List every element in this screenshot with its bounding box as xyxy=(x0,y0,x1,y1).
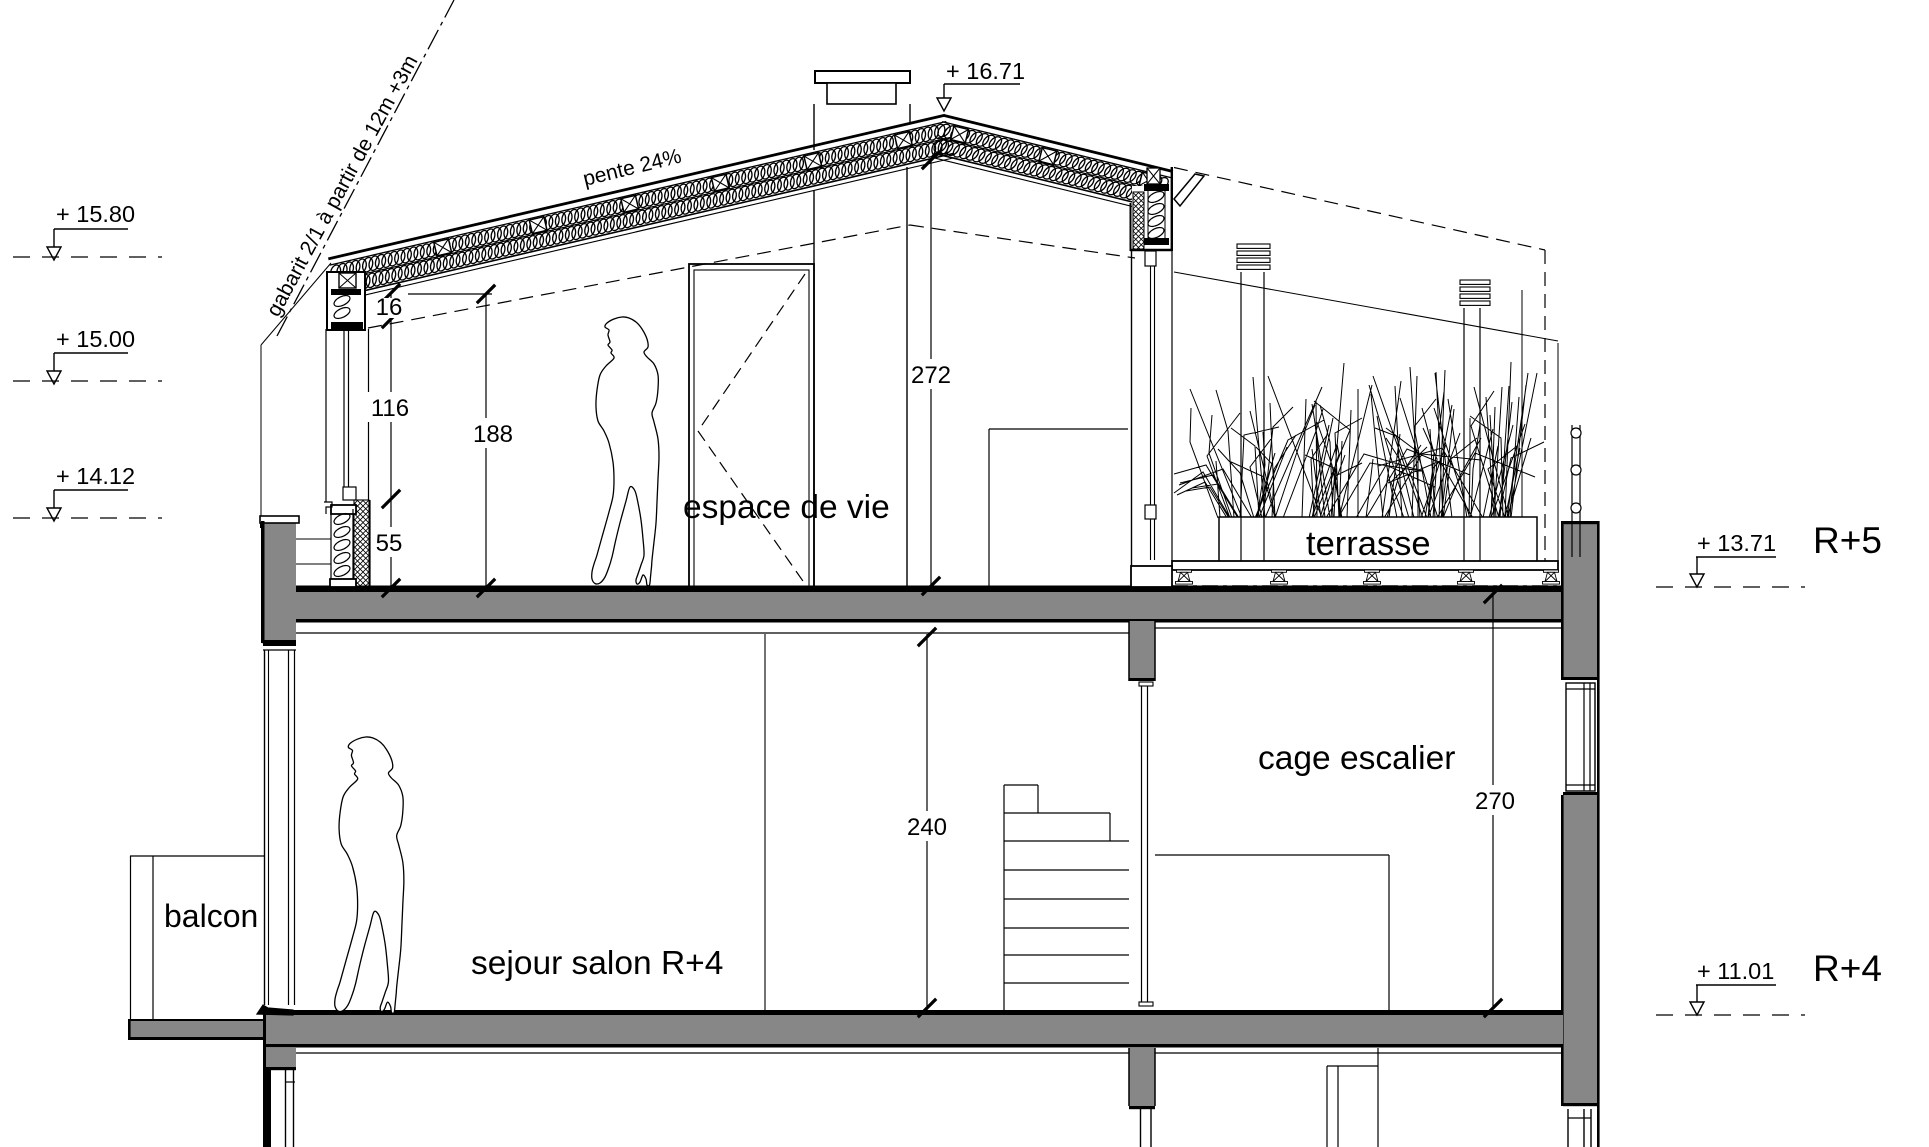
svg-text:sejour salon R+4: sejour salon R+4 xyxy=(471,945,723,982)
svg-text:240: 240 xyxy=(907,814,947,841)
svg-text:terrasse: terrasse xyxy=(1306,525,1431,563)
svg-text:R+5: R+5 xyxy=(1813,520,1882,561)
svg-text:55: 55 xyxy=(376,530,403,557)
svg-text:+ 15.00: + 15.00 xyxy=(56,326,135,352)
svg-text:cage escalier: cage escalier xyxy=(1258,740,1455,777)
svg-text:270: 270 xyxy=(1475,788,1515,815)
svg-text:+ 11.01: + 11.01 xyxy=(1697,958,1774,984)
svg-text:272: 272 xyxy=(911,362,951,389)
svg-text:+ 15.80: + 15.80 xyxy=(56,201,135,227)
svg-text:+ 13.71: + 13.71 xyxy=(1697,530,1776,556)
svg-text:188: 188 xyxy=(473,421,513,448)
svg-text:+ 14.12: + 14.12 xyxy=(56,463,135,489)
svg-text:balcon: balcon xyxy=(164,898,258,934)
svg-text:+ 16.71: + 16.71 xyxy=(946,58,1025,84)
svg-text:espace de vie: espace de vie xyxy=(683,489,890,526)
svg-text:R+4: R+4 xyxy=(1813,948,1882,989)
svg-text:116: 116 xyxy=(371,395,409,422)
svg-text:16: 16 xyxy=(376,294,403,321)
